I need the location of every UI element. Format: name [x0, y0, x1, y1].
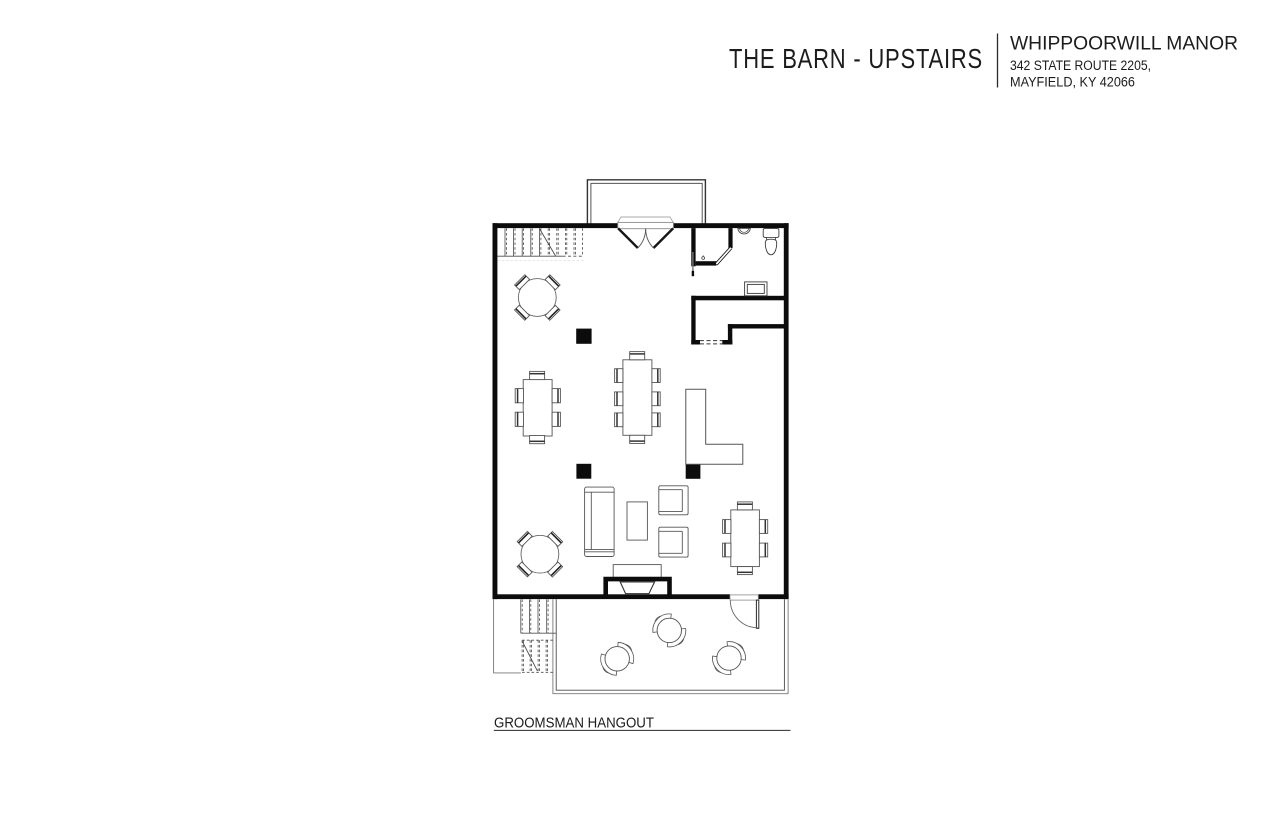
svg-text:342 STATE ROUTE 2205,: 342 STATE ROUTE 2205, [1010, 58, 1151, 74]
svg-text:MAYFIELD, KY 42066: MAYFIELD, KY 42066 [1010, 75, 1135, 91]
svg-text:THE BARN - UPSTAIRS: THE BARN - UPSTAIRS [729, 43, 983, 74]
svg-text:WHIPPOORWILL MANOR: WHIPPOORWILL MANOR [1010, 34, 1238, 55]
svg-text:GROOMSMAN HANGOUT: GROOMSMAN HANGOUT [494, 716, 654, 732]
